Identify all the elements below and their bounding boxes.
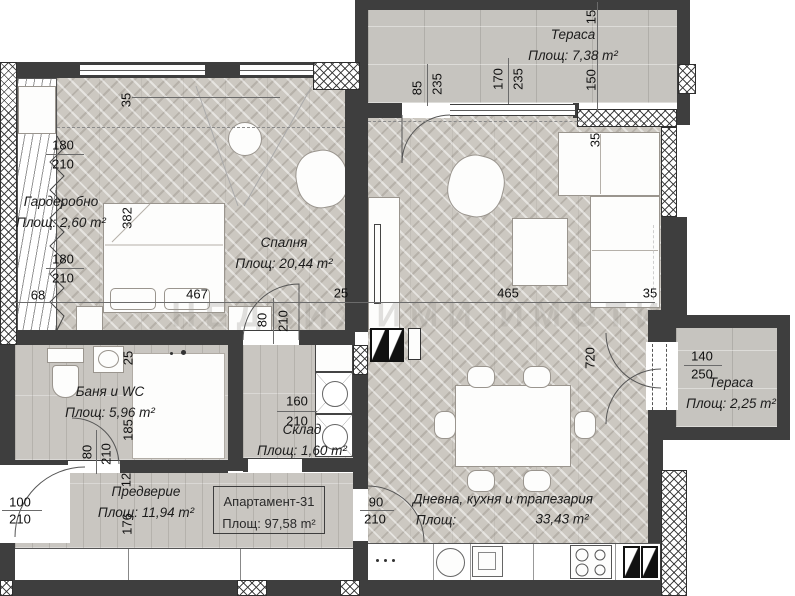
- room-label-terrace-right: Тераса Площ: 2,25 m²: [686, 373, 776, 415]
- apartment-title: Апартамент-31: [214, 491, 324, 513]
- dimension-line: [46, 268, 84, 269]
- dishwasher-dots: [392, 559, 395, 562]
- dimension-line: [46, 154, 84, 155]
- wall: [355, 0, 690, 10]
- dimension-line: [10, 302, 655, 303]
- counter-divider: [470, 544, 471, 580]
- terrace-door-frame: [666, 344, 667, 410]
- window: [240, 64, 313, 76]
- chair: [467, 366, 495, 388]
- washing-machine: [315, 372, 353, 414]
- room-area: Площ: 2,60 m²: [16, 213, 106, 234]
- floor-plan: НЕДВИЖИМИ ИМОТИ: [0, 0, 795, 596]
- dining-table: [455, 385, 571, 467]
- door-opening: [68, 461, 120, 473]
- room-area: Площ: 11,94 m²: [98, 503, 194, 524]
- room-area: Площ:: [416, 511, 456, 532]
- pillow: [110, 288, 156, 310]
- room-name: Гардеробно: [16, 192, 106, 213]
- dishwasher-dots: [376, 559, 379, 562]
- kitchen-sink-round: [436, 548, 465, 577]
- hatch-block: [577, 109, 677, 127]
- living-area-label: Площ:: [416, 511, 456, 532]
- wall: [0, 580, 661, 596]
- room-label-bathroom: Баня и WC Площ: 5,96 m²: [65, 382, 155, 424]
- wall: [677, 0, 690, 125]
- faucet-icon: [181, 350, 186, 355]
- dimension-line: [277, 411, 317, 412]
- terrace-top-floor: [368, 10, 677, 103]
- room-label-terrace-top: Тераса Площ: 7,38 m²: [528, 25, 618, 67]
- storage-cabinet: [315, 342, 353, 372]
- tv: [374, 224, 381, 304]
- terrace-door-frame: [652, 344, 653, 410]
- wall: [676, 427, 790, 440]
- room-area: Площ: 2,25 m²: [686, 394, 776, 415]
- kitchen-cabinet: [387, 328, 404, 362]
- sofa: [590, 196, 660, 308]
- wall: [777, 315, 790, 440]
- room-name: Тераса: [686, 373, 776, 394]
- wall: [368, 103, 402, 118]
- room-area: Площ: 20,44 m²: [235, 254, 332, 275]
- fridge: [641, 546, 658, 578]
- closet-divider: [128, 549, 129, 580]
- room-label-storage: Склад Площ: 1,60 m²: [257, 420, 347, 462]
- room-area: 33,43 m²: [535, 510, 588, 531]
- closet-divider: [240, 549, 241, 580]
- dimension-line: [684, 365, 722, 366]
- dimension-line: [2, 510, 42, 511]
- living-area-value: 33,43 m²: [535, 510, 588, 531]
- dimension-line: [132, 97, 280, 98]
- window: [450, 104, 575, 116]
- wall: [648, 310, 676, 345]
- room-name: Дневна, кухня и трапезария: [413, 490, 593, 511]
- room-area: Площ: 5,96 m²: [65, 403, 155, 424]
- wall: [648, 408, 676, 440]
- hatch-block: [313, 62, 360, 90]
- room-name: Склад: [257, 420, 347, 441]
- ceiling-dashed-line: [57, 127, 345, 128]
- hatch-block: [353, 345, 368, 375]
- room-label-hallway: Предверие Площ: 11,94 m²: [98, 482, 194, 524]
- wall: [676, 315, 790, 328]
- wardrobe-cabinet: [18, 86, 56, 134]
- stove-burners: [571, 546, 611, 578]
- counter-divider: [615, 544, 616, 580]
- toilet-tank: [47, 348, 84, 363]
- dishwasher-dots: [384, 559, 387, 562]
- coffee-table: [512, 218, 568, 286]
- door-opening: [402, 103, 450, 118]
- door-opening: [243, 331, 299, 345]
- chair: [574, 411, 596, 439]
- window: [80, 64, 205, 76]
- stove: [570, 545, 612, 579]
- room-name: Баня и WC: [65, 382, 155, 403]
- chair: [434, 411, 456, 439]
- sofa: [558, 132, 660, 196]
- room-label-living: Дневна, кухня и трапезария: [413, 490, 593, 511]
- apartment-area: Площ: 97,58 m²: [214, 513, 324, 535]
- dimension-line: [427, 64, 428, 106]
- room-name: Тераса: [528, 25, 618, 46]
- room-label-wardrobe: Гардеробно Площ: 2,60 m²: [16, 192, 106, 234]
- wall: [0, 330, 15, 465]
- wall: [15, 330, 355, 345]
- wall: [661, 217, 687, 315]
- counter-divider: [433, 544, 434, 580]
- apartment-info-box: Апартамент-31 Площ: 97,58 m²: [213, 486, 325, 534]
- faucet-icon: [170, 352, 173, 355]
- hatch-block: [237, 580, 267, 596]
- room-label-bedroom: Спалня Площ: 20,44 m²: [235, 233, 332, 275]
- nightstand: [76, 306, 103, 331]
- hatch-block: [661, 470, 687, 596]
- dimension-line: [508, 58, 509, 104]
- dimension-line: [273, 298, 274, 344]
- hatch-block: [661, 127, 677, 217]
- sofa-cushion-line: [592, 250, 658, 251]
- sofa-cushion-line: [600, 134, 601, 194]
- hall-closet: [15, 548, 353, 580]
- fridge: [623, 546, 640, 578]
- entrance-niche: [0, 465, 70, 543]
- terrace-door-opening: [646, 342, 678, 410]
- kitchen-cabinet: [408, 328, 421, 360]
- bathroom-sink-basin: [98, 350, 119, 368]
- dimension-line: [96, 430, 97, 474]
- chair: [523, 366, 551, 388]
- kitchen-cabinet: [370, 328, 387, 362]
- hatch-block: [678, 64, 696, 94]
- door-opening: [353, 489, 368, 541]
- wall: [345, 78, 368, 332]
- kitchen-sink-basin: [478, 552, 496, 570]
- hatch-block: [0, 580, 13, 596]
- counter-divider: [533, 544, 534, 580]
- room-name: Предверие: [98, 482, 194, 503]
- wall: [353, 540, 368, 582]
- hatch-block: [340, 580, 360, 596]
- ceiling-dashed-line: [368, 121, 648, 122]
- dimension-line: [360, 510, 394, 511]
- kitchen-counter: [368, 543, 660, 580]
- wall: [228, 345, 243, 471]
- room-name: Спалня: [235, 233, 332, 254]
- room-area: Площ: 7,38 m²: [528, 46, 618, 67]
- room-area: Площ: 1,60 m²: [257, 441, 347, 462]
- window-glass-line: [653, 225, 654, 305]
